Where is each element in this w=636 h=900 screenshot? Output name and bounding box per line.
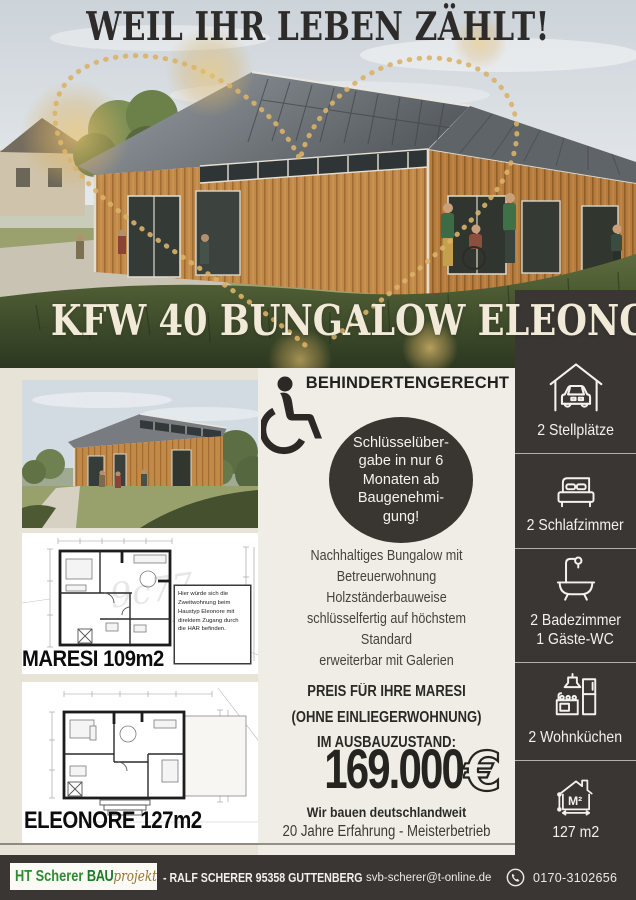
sidebar-divider <box>515 453 636 454</box>
feature-label: 127 m2 <box>552 823 599 842</box>
feature-bathrooms: 2 Badezimmer 1 Gäste-WC <box>515 549 636 662</box>
carport-icon <box>546 357 606 415</box>
feature-bedrooms: 2 Schlafzimmer <box>515 454 636 548</box>
bathtub-icon <box>547 549 605 605</box>
price-value: 169.000 <box>324 746 463 792</box>
bed-icon <box>548 464 604 510</box>
badge-line: Baugenehmi- <box>358 489 444 508</box>
feature-label: 2 Schlafzimmer <box>527 516 624 535</box>
feature-label: 1 Gäste-WC <box>537 630 614 649</box>
company-logo: HT Scherer BAUprojekt <box>10 863 157 890</box>
logo-part-3: projekt <box>113 867 157 885</box>
page-title: WEIL IHR LEBEN ZÄHLT! <box>64 4 573 50</box>
feature-kitchens: 2 Wohnküchen <box>515 663 636 760</box>
features-sidebar: 2 Stellplätze 2 Schlafzimmer 2 Badezim <box>515 290 636 855</box>
price-heading-line: PREIS FÜR IHRE MARESI <box>279 679 495 705</box>
contact-email: svb-scherer@t-online.de <box>366 855 491 900</box>
sidebar-divider <box>515 548 636 549</box>
company-logo-text: HT Scherer BAUprojekt <box>15 867 157 886</box>
price: 169.000 € <box>258 744 515 792</box>
logo-part-2: BAU <box>87 868 114 885</box>
badge-line: gung! <box>383 508 419 527</box>
plan-label-eleonore: ELEONORE 127m2 <box>24 807 202 835</box>
note-bold: Wir bauen deutschlandweit <box>273 804 499 820</box>
description-line: Holzständerbauweise <box>279 588 495 609</box>
plan-annotation: Hier würde sich die Zweitwohnung beim Ha… <box>174 585 251 664</box>
euro-outline-icon: € <box>463 744 509 798</box>
price-currency: € <box>463 744 502 798</box>
description-line: schlüsselfertig auf höchstem <box>279 609 495 630</box>
area-icon-text: M² <box>567 794 581 808</box>
description-text: Nachhaltiges Bungalow mit Betreuerwohnun… <box>279 546 495 671</box>
area-icon: M² <box>548 765 604 817</box>
info-column: BEHINDERTENGERECHT Schlüsselüber- gabe i… <box>258 368 515 855</box>
footer: HT Scherer BAUprojekt - RALF SCHERER 953… <box>0 855 636 900</box>
section-heading: BEHINDERTENGERECHT <box>300 374 515 393</box>
key-handover-badge: Schlüsselüber- gabe in nur 6 Monaten ab … <box>329 417 473 543</box>
price-heading-line: (OHNE EINLIEGERWOHNUNG) <box>279 705 495 731</box>
kitchen-icon <box>548 668 604 722</box>
badge-line: Monaten ab <box>363 471 440 490</box>
feature-label: 2 Stellplätze <box>537 421 614 440</box>
logo-part-1: HT Scherer <box>15 868 87 885</box>
bungalow-thumbnail-rendering <box>22 380 258 528</box>
badge-line: gabe in nur 6 <box>359 452 444 471</box>
company-address: - RALF SCHERER 95358 GUTTENBERG <box>163 855 363 900</box>
floorplan-maresi: 9c77 Hier würde sich die Zweitwohnung be… <box>22 533 258 674</box>
bungalow-thumbnail-photo <box>22 380 258 528</box>
badge-line: Schlüsselüber- <box>353 434 449 453</box>
description-line: Betreuerwohnung <box>279 567 495 588</box>
contact-phone: 0170-3102656 <box>533 855 617 900</box>
sidebar-divider <box>515 662 636 663</box>
banner-title: KFW 40 BUNGALOW ELEONORE <box>51 296 585 345</box>
description-line: Standard <box>279 630 495 651</box>
phone-icon <box>506 868 525 887</box>
description-line: Nachhaltiges Bungalow mit <box>279 546 495 567</box>
description-line: erweiterbar mit Galerien <box>279 651 495 672</box>
note: 20 Jahre Erfahrung - Meisterbetrieb <box>277 823 495 841</box>
floorplan-eleonore: ELEONORE 127m2 <box>22 682 258 843</box>
feature-label: 2 Badezimmer <box>530 611 621 630</box>
feature-living-area: M² 127 m2 <box>515 761 636 855</box>
plan-label-maresi: MARESI 109m2 <box>22 646 164 672</box>
feature-label: 2 Wohnküchen <box>529 728 623 747</box>
sidebar-divider <box>515 760 636 761</box>
bungalow-flyer: WEIL IHR LEBEN ZÄHLT! KFW 40 BUNGALOW EL… <box>0 0 636 900</box>
